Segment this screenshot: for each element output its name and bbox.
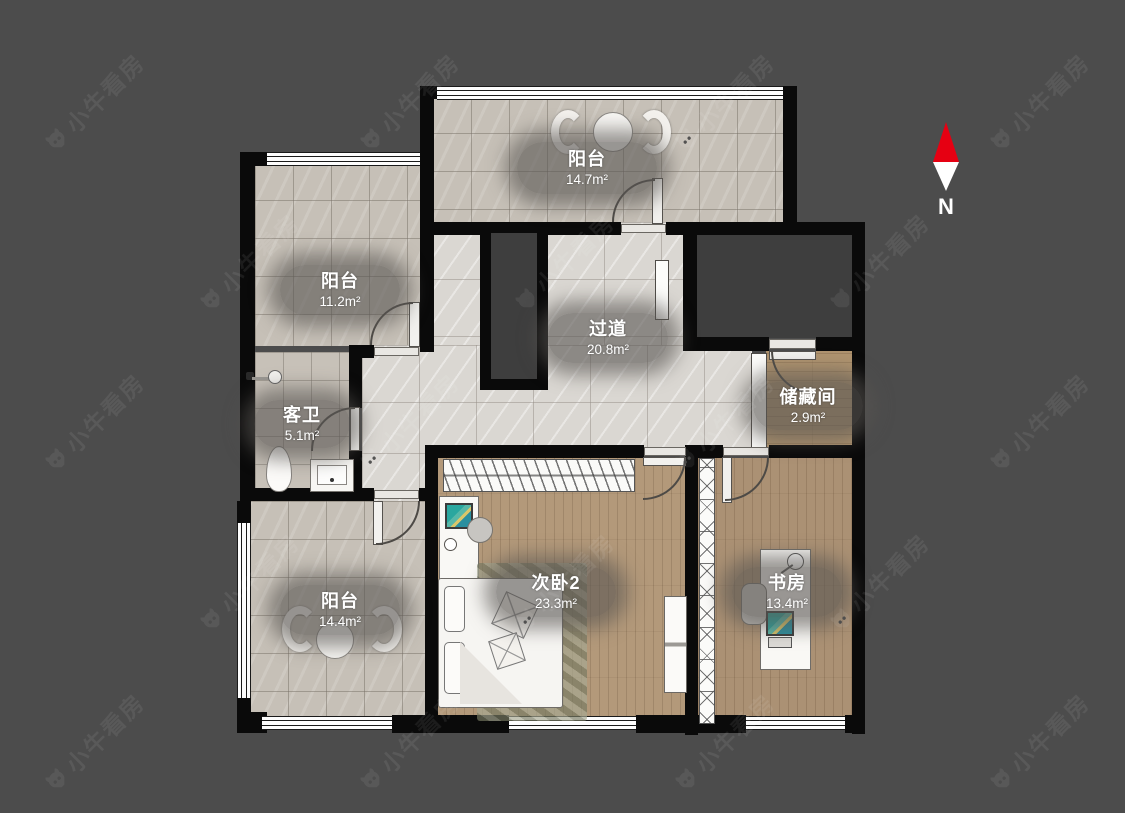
- room-area: 11.2m²: [319, 294, 360, 309]
- door-sill: [374, 347, 419, 356]
- laptop-base: [768, 637, 792, 648]
- door-sill: [644, 447, 686, 456]
- wall: [237, 501, 251, 523]
- room-label-balcony-bottom: 阳台 14.4m²: [280, 585, 400, 635]
- door-sill: [621, 224, 666, 233]
- room-label-study: 书房 13.4m²: [732, 567, 842, 617]
- room-name: 次卧2: [531, 573, 580, 594]
- bookshelf: [699, 458, 715, 724]
- room-name: 过道: [589, 319, 627, 340]
- room-area: 23.3m²: [535, 596, 577, 611]
- wall: [420, 86, 437, 99]
- wall: [698, 445, 723, 458]
- room-area: 14.7m²: [566, 172, 608, 187]
- room-name: 书房: [768, 573, 806, 594]
- wall: [240, 152, 255, 501]
- watermark: 小牛看房: [982, 685, 1097, 800]
- room-name: 阳台: [321, 271, 359, 292]
- room-label-bedroom2: 次卧2 23.3m²: [496, 567, 616, 617]
- north-compass: N: [920, 120, 972, 230]
- wall: [349, 345, 362, 408]
- wall: [683, 337, 769, 351]
- watermark: 小牛看房: [37, 365, 152, 480]
- window-balcony-bottom: [262, 716, 392, 730]
- watermark: 小牛看房: [37, 685, 152, 800]
- wall: [362, 345, 374, 358]
- south-arrow-icon: [933, 162, 959, 191]
- room-area: 13.4m²: [766, 596, 808, 611]
- wall: [683, 222, 697, 351]
- wall: [425, 445, 644, 458]
- room-area: 5.1m²: [285, 428, 320, 443]
- wall: [769, 445, 865, 458]
- room-name: 阳台: [568, 149, 606, 170]
- sink-tap: [330, 478, 334, 482]
- pillow: [444, 586, 465, 632]
- watermark: 小牛看房: [982, 365, 1097, 480]
- wall: [816, 337, 865, 351]
- room-label-balcony-top: 阳台 14.7m²: [517, 142, 657, 194]
- dresser: [664, 596, 687, 693]
- door-sill: [769, 339, 816, 349]
- room-name: 阳台: [321, 591, 359, 612]
- wall: [845, 715, 865, 733]
- north-label: N: [920, 194, 972, 220]
- room-area: 2.9m²: [791, 410, 826, 425]
- desk-item: [444, 538, 457, 551]
- window-balcony-bottom-left: [237, 523, 251, 698]
- adjacent-unit-area: [696, 235, 852, 338]
- wall: [852, 222, 865, 734]
- room-label-hallway: 过道 20.8m²: [548, 313, 668, 363]
- wardrobe: [443, 459, 635, 492]
- entry-cabinet: [655, 260, 669, 320]
- sink-basin: [317, 465, 347, 485]
- room-label-guest-bath: 客卫 5.1m²: [254, 400, 350, 448]
- wall: [783, 86, 797, 235]
- floor-hallway-b: [362, 345, 752, 453]
- wall: [425, 445, 438, 727]
- window-study: [746, 716, 845, 730]
- window-balcony-top: [437, 86, 783, 100]
- shaft-void: [491, 233, 537, 379]
- room-label-balcony-left: 阳台 11.2m²: [280, 265, 400, 315]
- north-arrow-icon: [933, 122, 959, 162]
- door-sill: [374, 490, 419, 499]
- room-label-storage: 储藏间 2.9m²: [753, 382, 863, 430]
- room-name: 储藏间: [780, 387, 837, 408]
- desk-chair: [467, 517, 493, 543]
- bull-logo-icon: [41, 124, 72, 155]
- watermark: 小牛看房: [982, 45, 1097, 160]
- door-sill: [723, 447, 769, 456]
- room-area: 20.8m²: [587, 342, 629, 357]
- room-area: 14.4m²: [319, 614, 361, 629]
- wall: [636, 715, 746, 733]
- room-name: 客卫: [283, 405, 321, 426]
- watermark: 小牛看房: [37, 45, 152, 160]
- wall: [420, 86, 434, 352]
- floor-plan-canvas: 阳台 14.7m² 阳台 11.2m² 过道 20.8m² 客卫 5.1m² 储…: [0, 0, 1125, 813]
- window-balcony-left: [267, 152, 420, 166]
- shower-head: [268, 370, 282, 384]
